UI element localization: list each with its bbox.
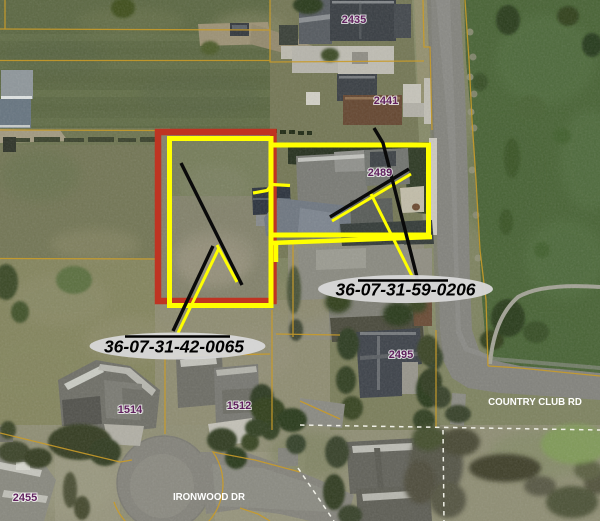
svg-text:36-07-31-59-0206: 36-07-31-59-0206 <box>335 280 475 300</box>
svg-text:1514: 1514 <box>118 404 143 416</box>
svg-text:2435: 2435 <box>342 14 366 26</box>
svg-text:2489: 2489 <box>368 167 392 179</box>
svg-text:IRONWOOD DR: IRONWOOD DR <box>173 492 245 503</box>
svg-text:2455: 2455 <box>13 492 37 504</box>
svg-text:2441: 2441 <box>374 95 398 107</box>
svg-text:1512: 1512 <box>227 400 251 412</box>
svg-text:COUNTRY CLUB RD: COUNTRY CLUB RD <box>488 397 582 408</box>
svg-text:2495: 2495 <box>389 349 413 361</box>
svg-text:36-07-31-42-0065: 36-07-31-42-0065 <box>104 337 244 357</box>
